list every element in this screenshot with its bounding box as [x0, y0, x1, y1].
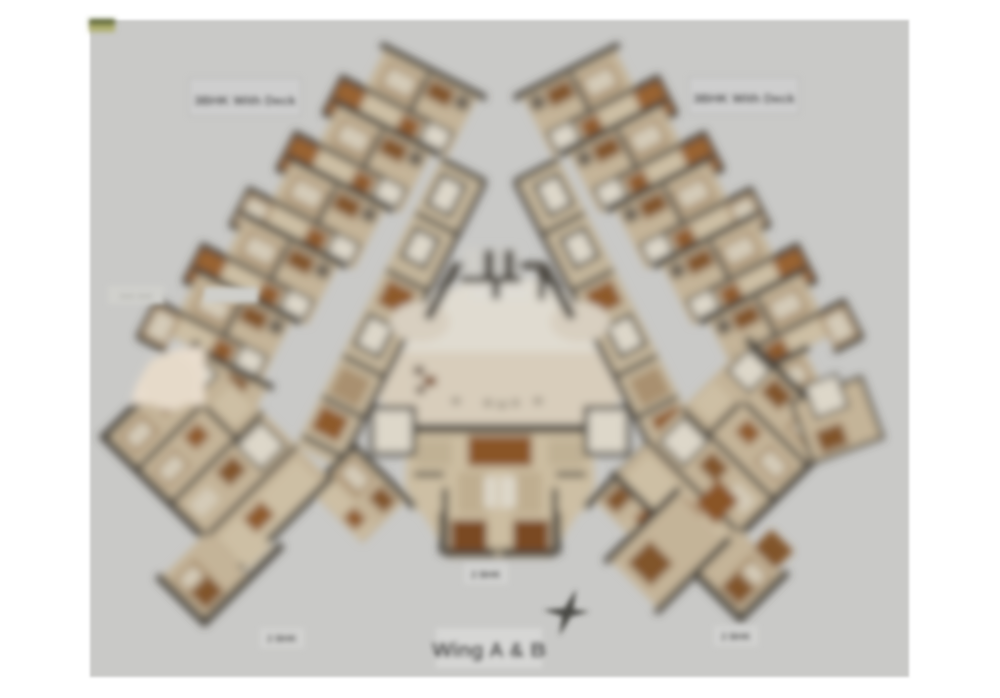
svg-text:2 BHK: 2 BHK	[471, 570, 502, 581]
svg-text:Wing A & B: Wing A & B	[433, 639, 546, 662]
svg-text:2 BHK: 2 BHK	[721, 632, 752, 643]
svg-text:2 BHK: 2 BHK	[267, 634, 298, 645]
svg-text:3BHK With Deck: 3BHK With Deck	[194, 93, 297, 108]
svg-text:xxx xxx: xxx xxx	[120, 291, 153, 302]
svg-text:3BHK With Deck: 3BHK With Deck	[693, 91, 796, 106]
